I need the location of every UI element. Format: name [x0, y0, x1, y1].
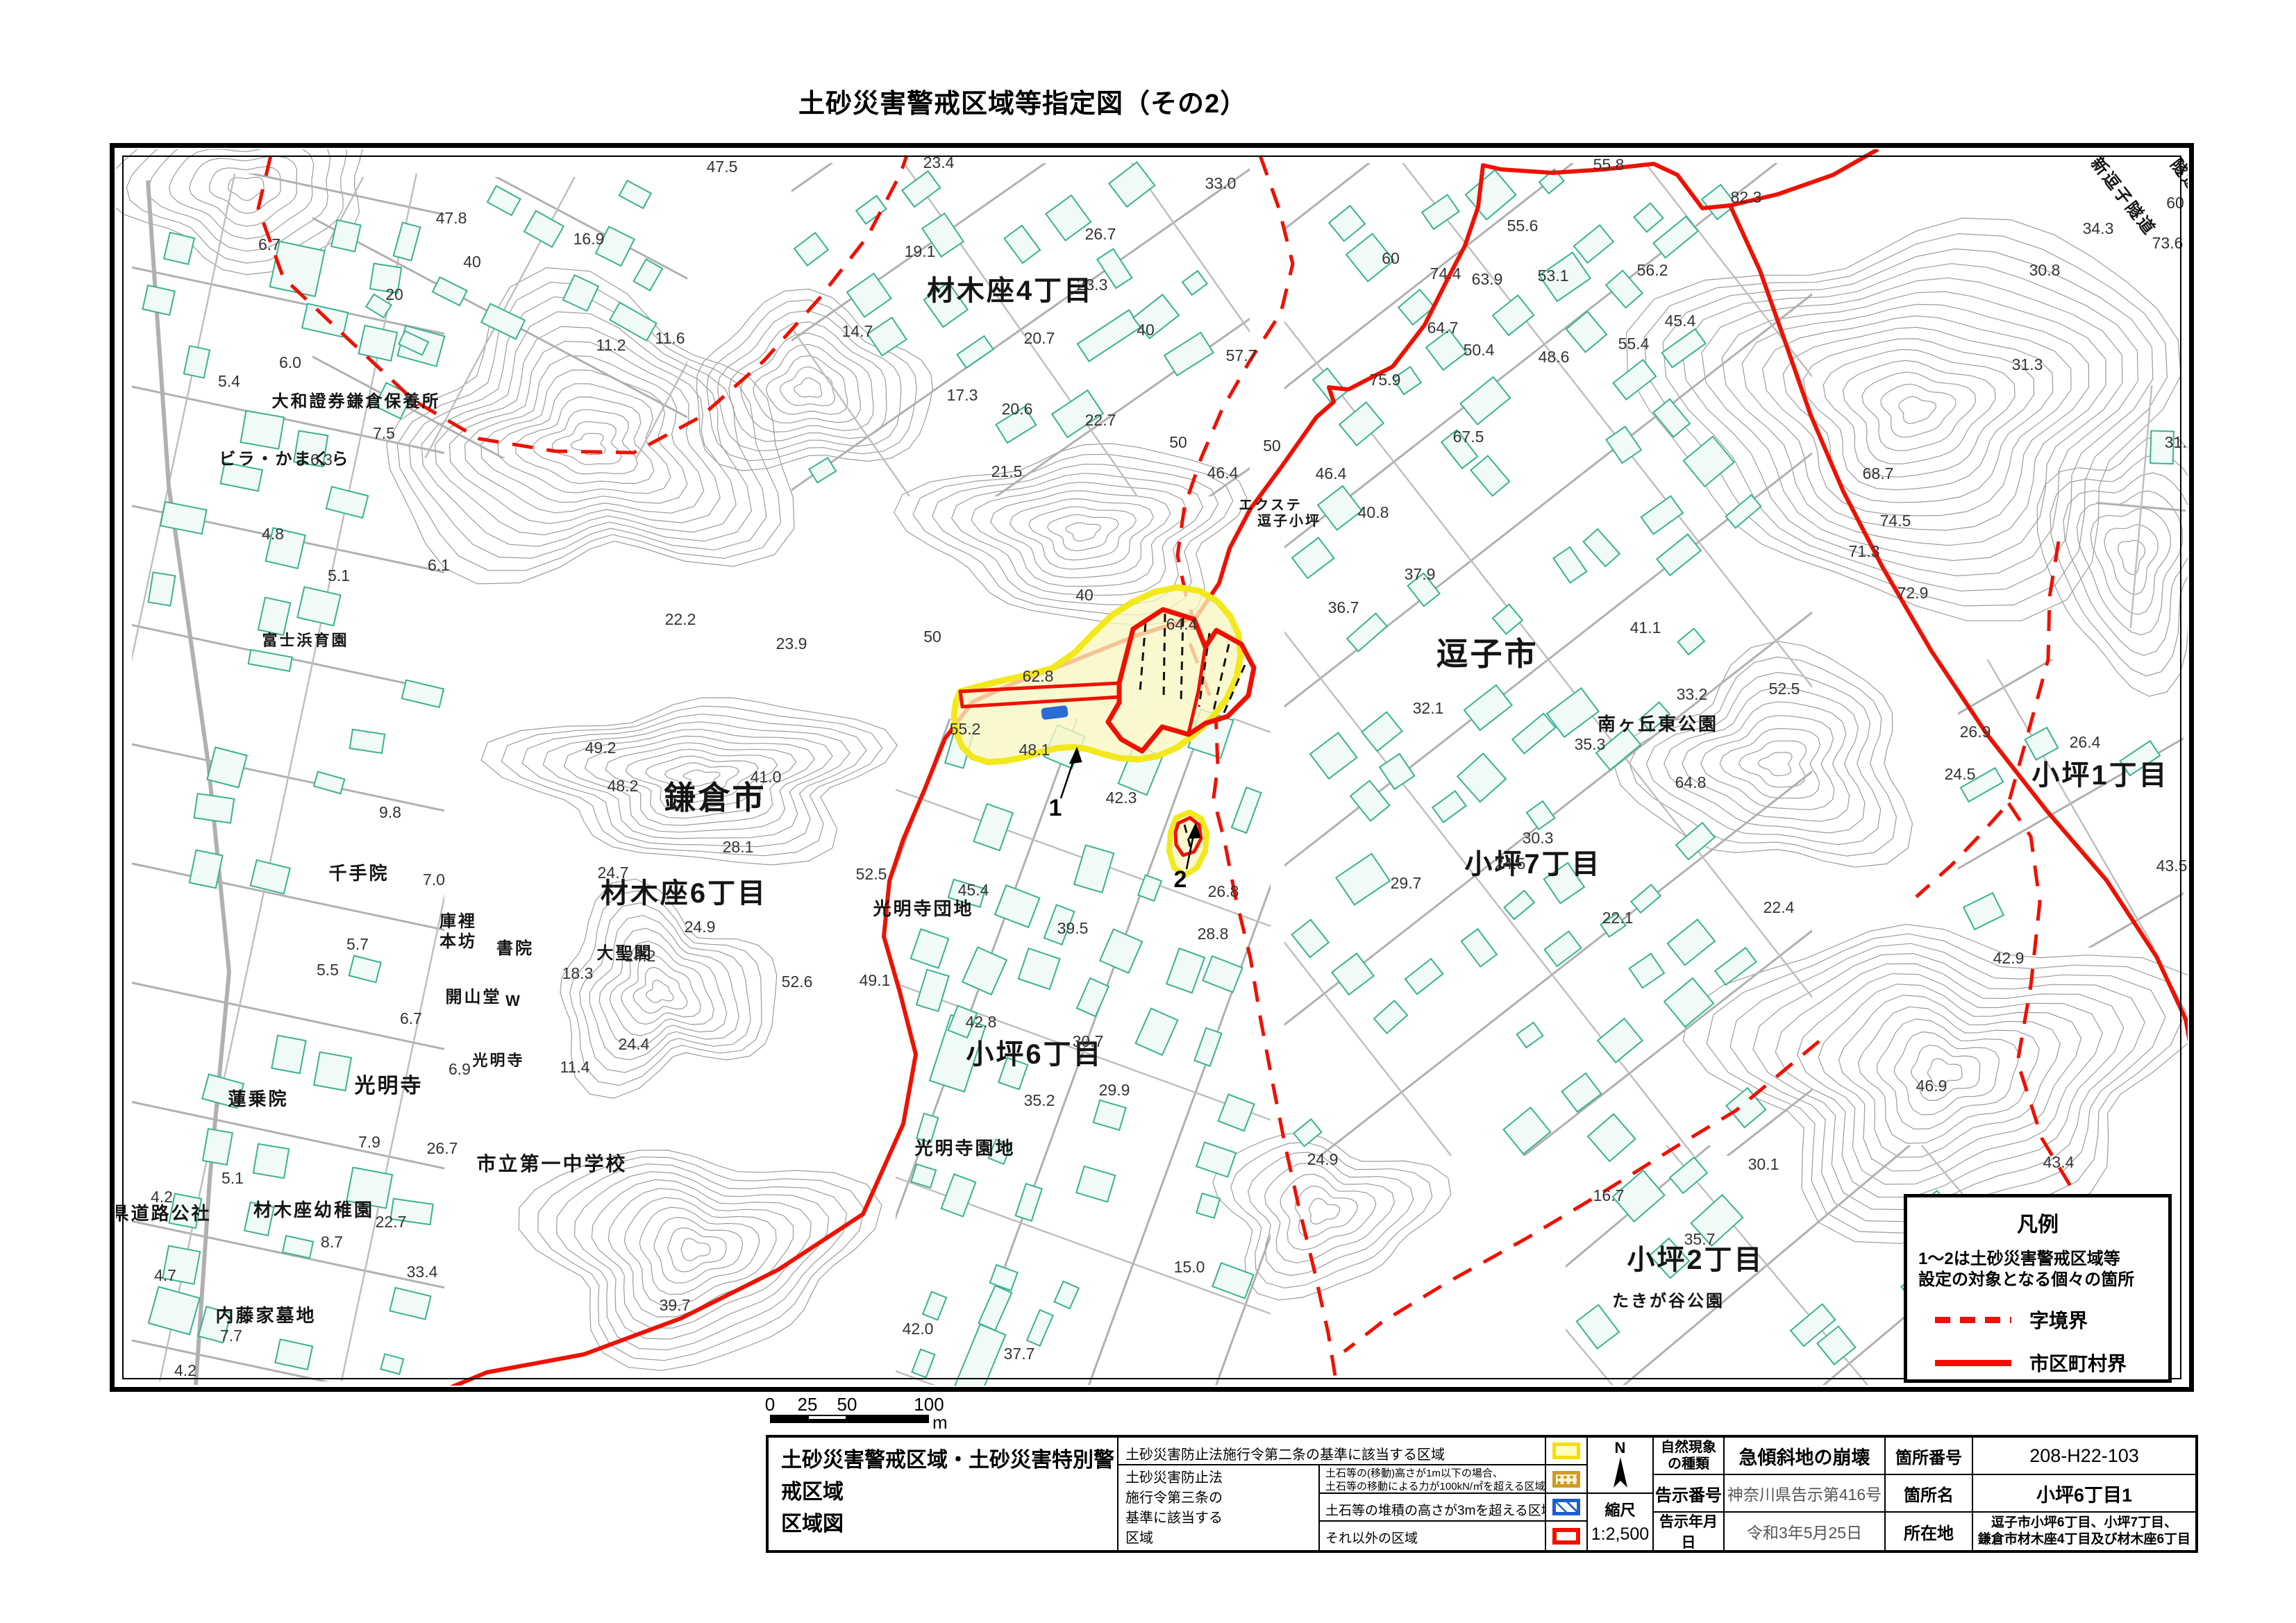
- zone-legend-row4-swatch-cell: [1546, 1522, 1588, 1550]
- building-footprint: [271, 1036, 305, 1074]
- building-footprint: [1292, 538, 1334, 578]
- building-footprint: [394, 222, 421, 260]
- boundary-lines: [258, 149, 2189, 1387]
- building-footprint: [160, 502, 207, 534]
- contour-ring: [1664, 687, 1865, 833]
- contour-ring: [681, 1238, 710, 1261]
- spot-elevation-label: 30.1: [1748, 1155, 1779, 1173]
- spot-elevation-label: 29.9: [1099, 1081, 1130, 1099]
- building-footprint: [194, 793, 235, 823]
- building-footprint: [1503, 1107, 1550, 1154]
- contour-ring: [421, 312, 751, 546]
- spot-elevation-label: 82.3: [1731, 188, 1762, 206]
- location-line2: 鎌倉市材木座4丁目及び材木座6丁目: [1978, 1531, 2190, 1548]
- building-footprint: [1074, 845, 1114, 892]
- spot-elevation-label: 4.8: [262, 525, 284, 543]
- red-solid-line-sample: [1935, 1360, 2011, 1366]
- building-footprint: [867, 317, 906, 355]
- map-place-label: 光明寺園地: [914, 1138, 1015, 1159]
- title-block: 土砂災害警戒区域・土砂災害特別警戒区域 区域図 土砂災害防止法施行令第二条の基準…: [766, 1435, 2198, 1553]
- map-place-label: 南ヶ丘東公園: [1598, 714, 1718, 734]
- building-footprint: [1512, 714, 1555, 754]
- map-place-label: 材木座幼稚園: [253, 1200, 374, 1220]
- map-place-label: 逗子小坪: [1257, 513, 1321, 529]
- spot-elevation-label: 6.3: [310, 451, 333, 469]
- building-footprint: [1019, 948, 1060, 989]
- legend-note-line2: 設定の対象となる個々の箇所: [1918, 1270, 2134, 1289]
- spot-elevation-label: 64.8: [1675, 773, 1707, 791]
- contour-ring: [1010, 499, 1154, 570]
- spot-elevation-label: 22.2: [665, 610, 696, 628]
- spot-elevation-label: 26.7: [1085, 225, 1116, 243]
- building-footprint: [1678, 628, 1704, 655]
- building-footprint: [1461, 377, 1511, 424]
- building-footprint: [1196, 1193, 1220, 1218]
- spot-elevation-label: 47.8: [436, 209, 467, 227]
- contour-ring: [570, 891, 762, 1086]
- scale-bar: 0 25 50 100 m: [760, 1394, 969, 1430]
- building-footprint: [1574, 225, 1614, 262]
- building-footprint: [1493, 605, 1523, 634]
- contour-ring: [1614, 641, 1913, 868]
- spot-elevation-label: 42.9: [1993, 949, 2025, 967]
- law-line: 基準に該当する: [1125, 1508, 1318, 1529]
- contour-ring: [1029, 507, 1137, 560]
- spot-elevation-label: 5.7: [346, 935, 369, 953]
- spot-elevation-label: 24.2: [625, 947, 656, 965]
- building-footprint: [1553, 547, 1586, 583]
- row2-line2: 土石等の移動による力が100kN/㎡を超える区域: [1325, 1480, 1545, 1493]
- map-place-label: エクステ: [1239, 497, 1302, 513]
- spot-elevation-label: 24.5: [1945, 765, 1976, 783]
- map-place-label: 隧道: [2167, 155, 2189, 196]
- building-footprint: [164, 233, 194, 264]
- building-footprint: [1005, 226, 1041, 263]
- contour-ring: [209, 167, 280, 213]
- legend-note: 1～2は土砂災害警戒区域等 設定の対象となる個々の箇所: [1918, 1249, 2168, 1290]
- spot-elevation-label: 23.9: [776, 634, 807, 653]
- spot-elevation-label: 24.9: [1307, 1150, 1339, 1168]
- spot-elevation-label: 50.4: [1464, 341, 1495, 359]
- spot-elevation-label: 15.0: [1174, 1258, 1205, 1276]
- map-place-label: 庫裡: [439, 911, 477, 931]
- building-footprint: [1493, 295, 1534, 335]
- field-site-number-label: 箇所番号: [1886, 1438, 1973, 1475]
- map-place-label: 内藤家墓地: [215, 1305, 316, 1326]
- building-footprint: [957, 336, 994, 368]
- spot-elevation-label: 50: [1169, 433, 1187, 451]
- building-footprint: [1292, 920, 1329, 957]
- building-footprint: [1517, 1023, 1543, 1048]
- building-footprint: [912, 1349, 935, 1378]
- map-place-label: 材木座4丁目: [927, 276, 1093, 306]
- contour-ring: [2104, 525, 2158, 594]
- field-notice-number-label: 告示番号: [1654, 1475, 1725, 1513]
- site-number-label: 2: [1174, 866, 1187, 893]
- building-footprint: [297, 587, 340, 625]
- spot-elevation-label: 24.4: [619, 1035, 650, 1053]
- building-footprint: [916, 970, 949, 1011]
- building-footprint: [1461, 929, 1497, 966]
- building-footprint: [1547, 688, 1599, 737]
- spot-elevation-label: 7.9: [358, 1133, 380, 1151]
- building-footprint: [610, 303, 656, 341]
- contour-ring: [1838, 995, 2060, 1158]
- spot-elevation-label: 24.5: [1495, 855, 1526, 873]
- contour-ring: [1644, 234, 2167, 606]
- spot-elevation-label: 62.8: [1023, 667, 1054, 685]
- spot-elevation-label: 40: [463, 253, 481, 271]
- spot-elevation-label: 18.3: [562, 964, 594, 982]
- spot-elevation-label: 28.8: [1198, 925, 1229, 943]
- field-site-name-value: 小坪6丁目1: [1973, 1475, 2195, 1513]
- spot-elevation-label: 22.1: [1602, 909, 1634, 927]
- building-footprint: [1641, 496, 1683, 534]
- spot-elevation-label: 24.9: [685, 918, 716, 936]
- spot-elevation-label: 42.3: [1106, 789, 1137, 807]
- building-footprint: [1504, 891, 1534, 919]
- contour-ring: [991, 491, 1171, 578]
- building-footprint: [955, 1325, 1005, 1387]
- spot-elevation-label: 6.7: [400, 1009, 422, 1027]
- zone-legend-row3-swatch-cell: [1546, 1494, 1588, 1522]
- contour-ring: [1663, 249, 2153, 591]
- contour-ring: [560, 879, 777, 1098]
- field-site-name-label: 箇所名: [1886, 1475, 1973, 1513]
- spot-elevation-label: 29.7: [1391, 874, 1422, 892]
- spot-elevation-label: 39.5: [1057, 919, 1089, 937]
- building-footprint: [314, 772, 344, 794]
- map-place-label: 材木座6丁目: [601, 878, 767, 909]
- field-notice-date-label: 告示年月日: [1654, 1513, 1725, 1550]
- spot-elevation-label: 26.7: [427, 1139, 458, 1157]
- building-footprint: [1676, 823, 1715, 859]
- spot-elevation-label: 20.6: [1002, 400, 1033, 418]
- spot-elevation-label: 48.1: [1019, 741, 1050, 759]
- building-footprint: [941, 1174, 976, 1216]
- blue-hatched-zone-swatch: [1552, 1499, 1580, 1515]
- spot-elevation-label: 41.1: [1630, 619, 1661, 637]
- spot-elevation-label: 67.5: [1453, 428, 1484, 446]
- spot-elevation-label: 31.3: [2012, 355, 2043, 373]
- building-footprint: [524, 211, 564, 247]
- building-footprint: [149, 1287, 200, 1335]
- sheet-title-cell: 土砂災害警戒区域・土砂災害特別警戒区域 区域図: [769, 1438, 1118, 1550]
- building-footprint: [1109, 162, 1155, 207]
- building-footprint: [487, 186, 521, 215]
- building-footprint: [1380, 754, 1414, 789]
- building-footprint: [314, 1052, 351, 1091]
- scale-bar-segment: [807, 1415, 847, 1423]
- contour-ring: [1048, 514, 1119, 550]
- spot-elevation-label: 36.7: [1328, 598, 1359, 616]
- field-site-number-value: 208-H22-103: [1973, 1438, 2195, 1475]
- map-place-label: 千手院: [328, 863, 389, 884]
- spot-elevation-label: 55.4: [1618, 335, 1650, 353]
- building-footprint: [1653, 217, 1698, 258]
- building-footprint: [1196, 1142, 1236, 1177]
- building-footprint: [911, 929, 948, 968]
- north-label: N: [1615, 1440, 1626, 1456]
- contour-ring: [1899, 396, 1936, 423]
- spot-elevation-label: 71.3: [1849, 542, 1880, 560]
- zone-legend-row2-swatch-cell: [1546, 1465, 1588, 1494]
- field-notice-date-value: 令和3年5月25日: [1725, 1513, 1886, 1550]
- legend-title: 凡例: [1907, 1207, 2168, 1238]
- building-footprint: [1584, 529, 1620, 566]
- spot-elevation-label: 45.4: [1665, 312, 1696, 330]
- building-footprint: [389, 1288, 430, 1320]
- spot-elevation-label: 6.7: [258, 235, 280, 253]
- sheet-title-line2: 区域図: [781, 1508, 1117, 1540]
- law-line: 区域: [1125, 1529, 1318, 1549]
- building-footprint: [856, 196, 886, 224]
- district-boundary-dashed: [1916, 541, 2059, 897]
- spot-elevation-label: 31.1: [2165, 433, 2189, 451]
- building-footprint: [1457, 753, 1506, 802]
- legend-item-municipal-boundary: 市区町村界: [1935, 1349, 2168, 1377]
- building-footprint: [1203, 956, 1242, 992]
- contour-ring: [1759, 752, 1793, 776]
- building-footprint: [1464, 685, 1512, 730]
- spot-elevation-label: 20: [385, 285, 403, 303]
- spot-elevation-label: 64.4: [1166, 615, 1198, 633]
- compass-cell: N: [1588, 1438, 1654, 1494]
- contour-ring: [1739, 741, 1807, 787]
- topographic-map: 材木座4丁目逗子市鎌倉市材木座6丁目小坪6丁目小坪7丁目小坪1丁目小坪2丁目南ヶ…: [115, 148, 2189, 1387]
- building-footprint: [184, 346, 210, 378]
- building-footprint: [923, 1292, 946, 1320]
- spot-elevation-label: 35.3: [1575, 735, 1606, 753]
- spot-elevation-label: 8.7: [321, 1233, 343, 1251]
- spot-elevation-label: 22.4: [1763, 898, 1795, 916]
- building-footprint: [253, 1144, 289, 1178]
- spot-elevation-label: 30.3: [1523, 829, 1554, 847]
- building-footprint: [979, 1286, 1012, 1331]
- law-line: 施行令第三条の: [1125, 1488, 1318, 1508]
- spot-elevation-label: 14.7: [842, 322, 873, 340]
- building-footprint: [1166, 948, 1205, 993]
- building-footprint: [1027, 1310, 1053, 1346]
- spot-elevation-label: 46.4: [1316, 464, 1347, 482]
- sheet-title-line1: 土砂災害警戒区域・土砂災害特別警戒区域: [781, 1445, 1117, 1508]
- spot-elevation-label: 72.9: [1897, 584, 1929, 602]
- spot-elevation-label: 23.3: [1077, 276, 1108, 294]
- building-footprint: [402, 680, 444, 707]
- spot-elevation-label: 55.8: [1593, 155, 1625, 174]
- field-phenomenon-value: 急傾斜地の崩壊: [1725, 1438, 1886, 1475]
- spot-elevation-label: 35.2: [1024, 1091, 1055, 1109]
- spot-elevation-label: 42.8: [966, 1013, 997, 1031]
- spot-elevation-label: 7.7: [220, 1327, 242, 1345]
- spot-elevation-label: 57.7: [1226, 346, 1257, 364]
- spot-elevation-label: 40.8: [1358, 503, 1389, 521]
- building-footprint: [433, 277, 467, 305]
- map-place-label: 市立第一中学校: [476, 1152, 627, 1175]
- spot-elevation-label: 5.5: [317, 961, 339, 979]
- row2-line1: 土石等の(移動)高さが1m以下の場合、: [1325, 1467, 1545, 1480]
- spot-elevation-label: 43.5: [2156, 857, 2188, 875]
- spot-elevation-label: 4.7: [154, 1266, 176, 1284]
- spot-elevation-label: 33.0: [1205, 174, 1237, 192]
- map-place-label: 光明寺: [471, 1052, 524, 1069]
- building-footprint: [1544, 932, 1581, 966]
- spot-elevation-label: 30.8: [2029, 261, 2061, 279]
- spot-elevation-label: 55.2: [950, 720, 981, 738]
- contour-ring: [654, 1218, 742, 1284]
- spot-elevation-label: 6.1: [428, 556, 450, 574]
- legend-item-district-boundary: 字境界: [1935, 1306, 2168, 1334]
- map-place-label: 小坪2丁目: [1627, 1245, 1763, 1275]
- spot-elevation-label: 60: [1382, 249, 1400, 267]
- building-footprint: [349, 956, 381, 982]
- scale-bar-segment: [770, 1415, 807, 1423]
- contour-ring: [1862, 372, 1976, 451]
- spot-elevation-label: 26.9: [1960, 723, 1991, 741]
- spot-elevation-label: 9.8: [379, 803, 401, 821]
- spot-elevation-label: 21.5: [991, 462, 1023, 480]
- zone-legend-row1-swatch-cell: [1546, 1438, 1588, 1465]
- scale-value: 1:2,500: [1588, 1524, 1652, 1545]
- spot-elevation-label: 37.7: [1004, 1345, 1035, 1363]
- building-footprint: [1076, 1166, 1115, 1202]
- spot-elevation-label: 5.1: [328, 566, 350, 585]
- building-footprint: [207, 748, 246, 788]
- building-footprint: [1684, 437, 1734, 487]
- map-place-label: 光明寺: [355, 1075, 424, 1098]
- contour-ring: [2118, 540, 2145, 575]
- spot-elevation-label: 50: [1263, 437, 1281, 455]
- map-place-label: 開山堂: [446, 988, 502, 1007]
- spot-elevation-label: 24.7: [598, 864, 629, 882]
- building-footprint: [1562, 1073, 1602, 1112]
- spot-elevation-label: 49.2: [585, 739, 617, 757]
- spot-elevation-label: 48.2: [607, 777, 639, 795]
- spot-elevation-label: 26.4: [2070, 733, 2101, 751]
- contour-ring: [1702, 278, 2122, 560]
- contour-ring: [498, 384, 671, 494]
- building-footprint: [1136, 1009, 1178, 1055]
- building-footprint: [302, 303, 348, 337]
- building-footprint: [1100, 930, 1142, 973]
- spot-elevation-label: 55.6: [1507, 217, 1539, 235]
- building-footprint: [1016, 1184, 1042, 1221]
- zone-legend-row4-text: それ以外の区域: [1320, 1522, 1546, 1550]
- spot-elevation-label: 6.0: [279, 353, 301, 371]
- map-legend-box: 凡例 1～2は土砂災害警戒区域等 設定の対象となる個々の箇所 字境界 市区町村界: [1904, 1194, 2172, 1383]
- building-footprint: [350, 730, 385, 753]
- contour-ring: [519, 1150, 882, 1370]
- spot-elevation-label: 39.7: [660, 1296, 691, 1314]
- spot-elevation-label: 75.9: [1370, 371, 1401, 389]
- spot-elevation-label: 11.4: [560, 1058, 589, 1076]
- red-outline-zone-swatch: [1552, 1528, 1580, 1545]
- contour-ring: [557, 1164, 847, 1350]
- field-location-value: 逗子市小坪6丁目、小坪7丁目、 鎌倉市材木座4丁目及び材木座6丁目: [1973, 1513, 2195, 1550]
- spot-elevation-label: 64.7: [1427, 319, 1459, 337]
- field-phenomenon-label: 自然現象 の種類: [1654, 1438, 1725, 1475]
- map-place-label: 富士浜育園: [262, 632, 349, 649]
- contour-ring: [1783, 328, 2053, 503]
- building-footprint: [1336, 854, 1390, 905]
- red-dashed-line-sample: [1935, 1317, 2011, 1323]
- building-footprint: [619, 180, 651, 208]
- building-footprint: [1077, 978, 1109, 1016]
- contour-ring: [794, 378, 822, 397]
- contour-ring: [2050, 454, 2189, 676]
- spot-elevation-label: 6.9: [449, 1060, 471, 1078]
- spot-elevation-label: 46.9: [1916, 1077, 1947, 1095]
- page-title: 土砂災害警戒区域等指定図（その2）: [798, 82, 1243, 120]
- contour-ring: [1742, 304, 2088, 530]
- building-footprint: [1422, 195, 1459, 230]
- contour-ring: [1309, 1199, 1340, 1225]
- map-place-label: 大和證券鎌倉保養所: [272, 392, 441, 411]
- spot-elevation-label: 37.9: [1405, 565, 1436, 583]
- building-footprint: [973, 804, 1012, 850]
- contour-ring: [589, 916, 739, 1060]
- contour-ring: [1264, 1163, 1394, 1263]
- spot-elevation-label: 73.6: [2152, 234, 2184, 252]
- zone-legend-law-cell: 土砂災害防止法 施行令第三条の 基準に該当する 区域: [1118, 1465, 1320, 1550]
- building-footprint: [1218, 1094, 1255, 1131]
- spot-elevation-label: 46.4: [1207, 464, 1239, 482]
- contour-ring: [387, 268, 794, 584]
- building-footprint: [331, 220, 360, 252]
- municipal-boundary-line: [1730, 205, 2189, 1061]
- contour-ring: [780, 367, 835, 406]
- building-footprint: [1347, 614, 1387, 652]
- spot-elevation-label: 40: [1075, 586, 1093, 604]
- contour-ring: [1803, 339, 2034, 490]
- buildings: [142, 162, 2173, 1387]
- map-place-label: 蓮乗院: [228, 1088, 288, 1109]
- spot-elevation-label: 63.9: [1472, 270, 1503, 288]
- spot-elevation-label: 7.5: [373, 424, 395, 442]
- building-footprint: [1293, 1119, 1321, 1146]
- law-line: 土砂災害防止法: [1125, 1468, 1318, 1488]
- scale-bar-segment: [847, 1415, 929, 1423]
- spot-elevation-label: 4.2: [151, 1188, 173, 1206]
- zone-legend-row1-text: 土砂災害防止法施行令第二条の基準に該当する区域: [1118, 1438, 1546, 1465]
- contour-ring: [608, 1188, 793, 1317]
- field-notice-number-value: 神奈川県告示第416号: [1725, 1475, 1886, 1513]
- building-footprint: [1093, 1100, 1126, 1130]
- building-footprint: [249, 650, 292, 671]
- spot-elevation-label: 19.1: [905, 242, 936, 260]
- contour-ring: [1843, 360, 1996, 464]
- building-footprint: [1350, 780, 1390, 821]
- building-footprint: [1078, 310, 1141, 362]
- spot-elevation-label: 40: [1137, 321, 1155, 339]
- spot-elevation-label: 11.6: [655, 329, 685, 347]
- legend-note-line1: 1～2は土砂災害警戒区域等: [1918, 1250, 2120, 1268]
- building-footprint: [1182, 271, 1207, 295]
- building-footprint: [1164, 333, 1214, 376]
- scale-tick: 25: [798, 1394, 818, 1415]
- building-footprint: [1374, 1000, 1407, 1033]
- phenomenon-label-l2: の種類: [1661, 1456, 1716, 1472]
- contour-ring: [1730, 943, 2165, 1222]
- spot-elevation-label: 11.2: [596, 336, 626, 354]
- spot-elevation-label: 33.4: [407, 1263, 438, 1281]
- contour-ring: [1629, 657, 1897, 856]
- building-footprint: [1629, 954, 1664, 988]
- building-footprint: [380, 1354, 403, 1374]
- building-footprint: [995, 885, 1039, 927]
- field-location-label: 所在地: [1886, 1513, 1973, 1550]
- building-footprint: [359, 326, 398, 361]
